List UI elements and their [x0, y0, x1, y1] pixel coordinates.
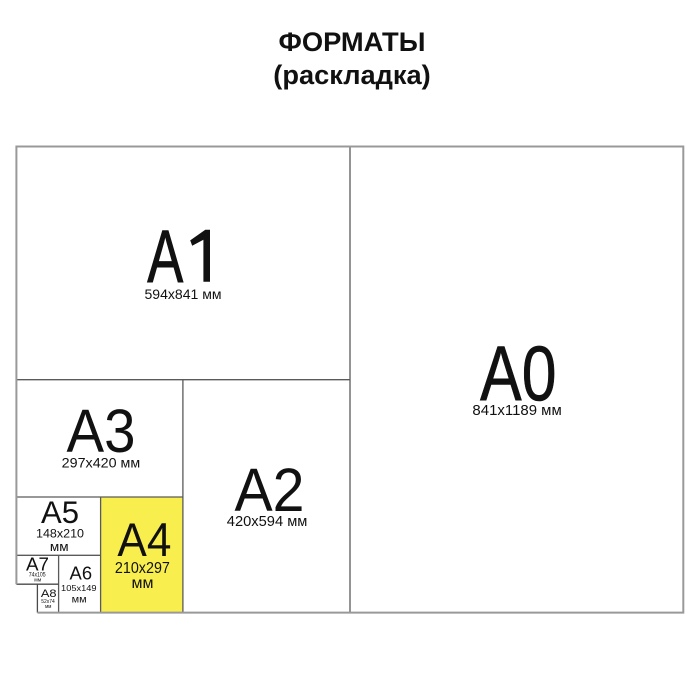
svg-text:594х841 мм: 594х841 мм	[145, 287, 222, 303]
svg-text:ФОРМАТЫ: ФОРМАТЫ	[279, 27, 426, 57]
svg-text:мм: мм	[132, 575, 154, 592]
svg-text:(раскладка): (раскладка)	[273, 60, 431, 90]
svg-text:841х1189 мм: 841х1189 мм	[472, 403, 561, 419]
svg-text:420х594 мм: 420х594 мм	[227, 514, 308, 530]
svg-text:105х149: 105х149	[61, 583, 97, 593]
svg-text:мм: мм	[34, 577, 41, 583]
svg-text:мм: мм	[45, 604, 52, 610]
svg-text:148х210: 148х210	[36, 527, 84, 541]
svg-text:мм: мм	[72, 595, 87, 606]
svg-text:297х420 мм: 297х420 мм	[62, 455, 141, 470]
svg-text:А: А	[147, 215, 183, 298]
svg-text:мм: мм	[50, 540, 69, 554]
svg-text:А7: А7	[26, 553, 49, 574]
svg-text:А6: А6	[70, 563, 93, 584]
svg-text:А5: А5	[41, 494, 79, 530]
